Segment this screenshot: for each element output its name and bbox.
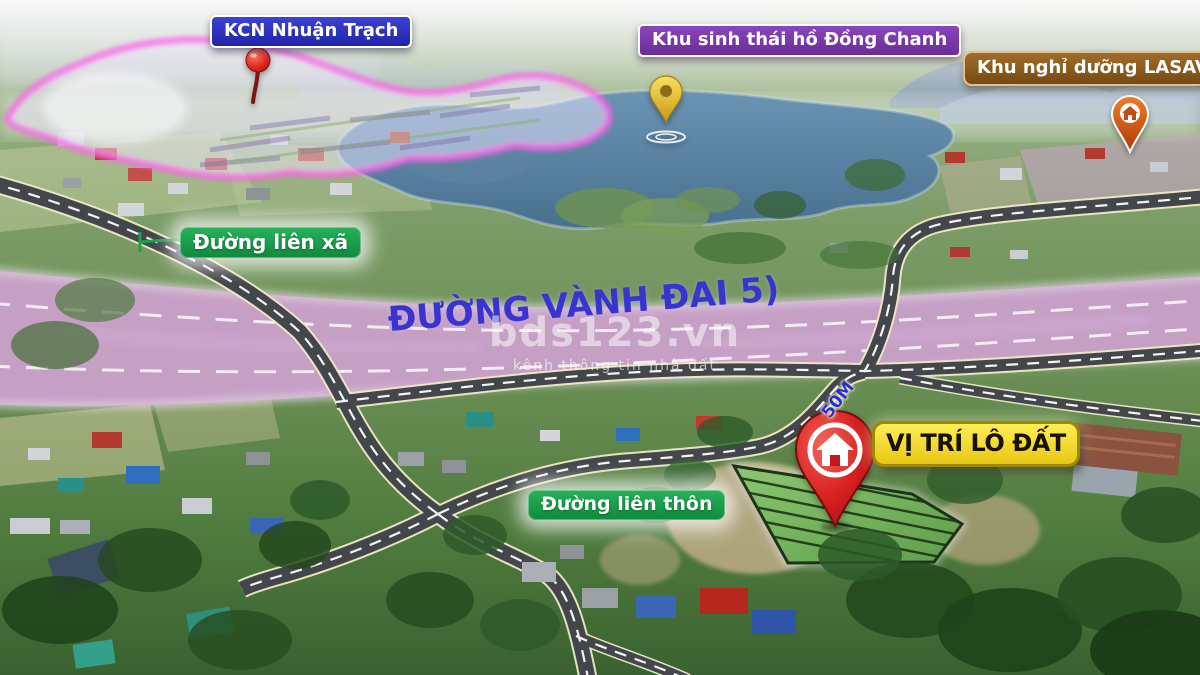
resort-label: Khu nghỉ dưỡng LASAVER — [963, 51, 1200, 86]
property-location-label: VỊ TRÍ LÔ ĐẤT — [872, 421, 1080, 467]
industrial-zone-label: KCN Nhuận Trạch — [210, 15, 412, 48]
aerial-map: KCN Nhuận Trạch Khu sinh thái hồ Đồng Ch… — [0, 0, 1200, 675]
aerial-scene — [0, 0, 1200, 675]
commune-road-label: Đường liên xã — [180, 227, 361, 258]
eco-lake-label: Khu sinh thái hồ Đồng Chanh — [638, 24, 961, 57]
property-pin-icon — [792, 408, 878, 530]
village-road-label: Đường liên thôn — [528, 490, 725, 520]
industrial-zone-pin-icon — [240, 44, 276, 108]
eco-lake-pin-icon — [642, 74, 694, 146]
resort-pin-icon — [1106, 94, 1154, 160]
